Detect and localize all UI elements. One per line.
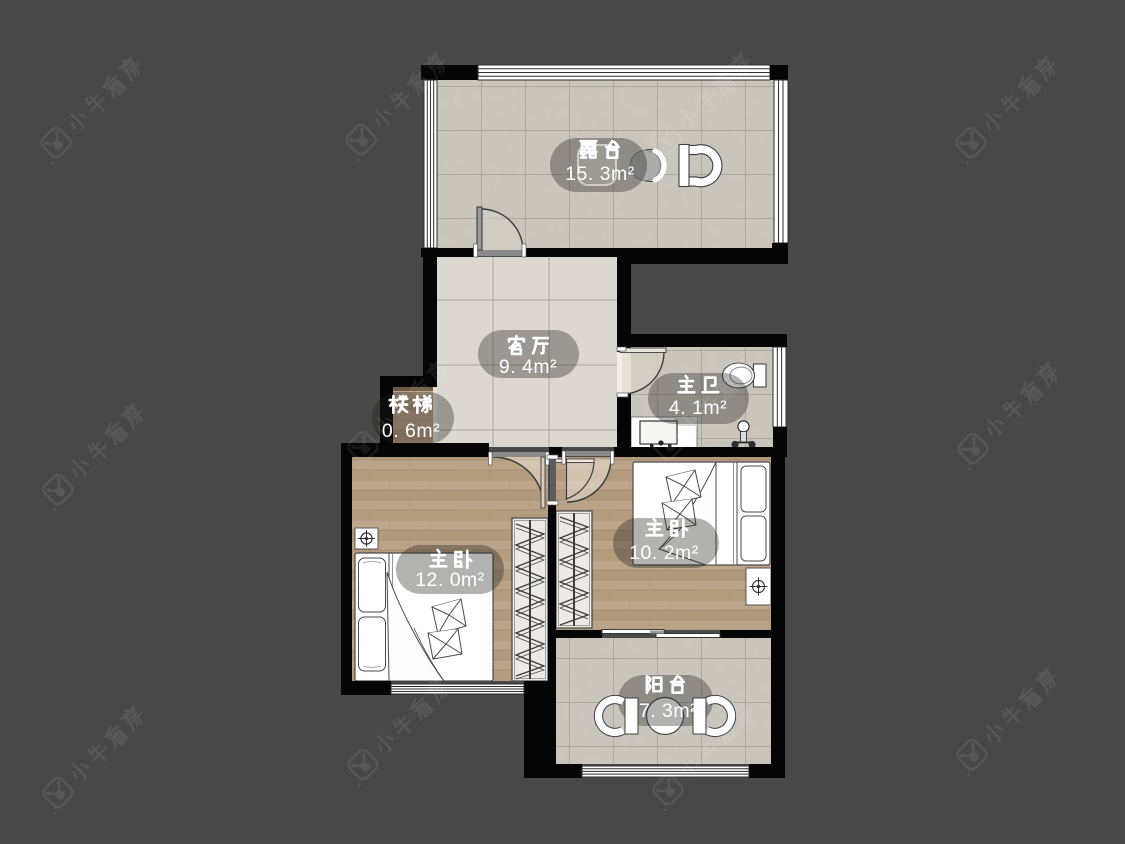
svg-text:7. 3m²: 7. 3m² <box>639 700 697 722</box>
svg-text:10. 2m²: 10. 2m² <box>629 542 699 564</box>
svg-text:9. 4m²: 9. 4m² <box>499 356 557 378</box>
svg-text:15. 3m²: 15. 3m² <box>565 163 635 185</box>
svg-text:12. 0m²: 12. 0m² <box>415 569 485 591</box>
